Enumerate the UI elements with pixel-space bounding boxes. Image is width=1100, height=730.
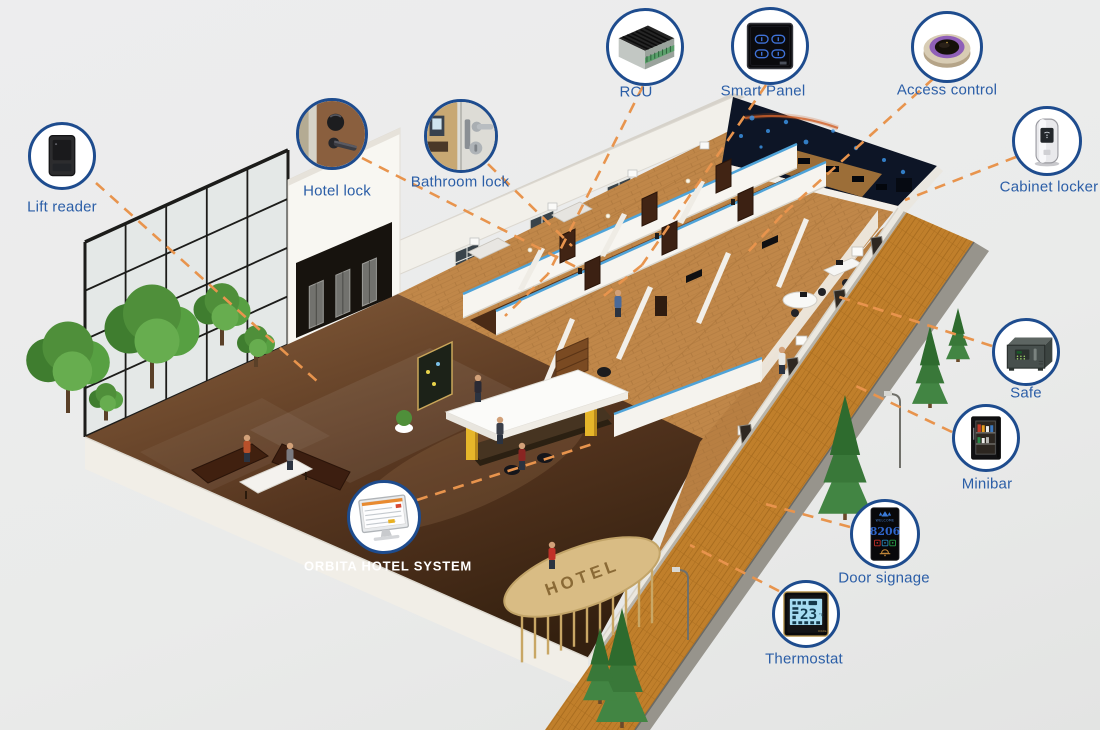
rcu-icon: [606, 8, 684, 86]
cabinet-locker-label: Cabinet locker: [1000, 179, 1099, 196]
smart-panel-icon: [731, 7, 809, 85]
thermostat-label: Thermostat: [765, 651, 843, 668]
callout-lift-reader: [28, 122, 96, 190]
door-signage-icon: WELCOME8206: [850, 499, 920, 569]
callout-bathroom-lock: [424, 99, 498, 173]
cabinet-locker-icon: [1012, 106, 1082, 176]
smart-panel-label: Smart Panel: [721, 83, 806, 100]
callout-minibar: [952, 404, 1020, 472]
access-control-icon: [911, 11, 983, 83]
access-control-label: Access control: [897, 82, 997, 99]
callout-hotel-lock: [296, 98, 368, 170]
svg-text:WELCOME: WELCOME: [876, 518, 895, 522]
callout-cabinet-locker: [1012, 106, 1082, 176]
minibar-icon: [952, 404, 1020, 472]
svg-text:°C: °C: [819, 613, 824, 619]
callout-orbita-hotel-system: [347, 480, 421, 554]
svg-text:8206: 8206: [870, 525, 901, 538]
lift-reader-label: Lift reader: [27, 199, 97, 216]
rcu-label: RCU: [619, 84, 652, 101]
svg-text:Orbita: Orbita: [818, 629, 827, 633]
safe-label: Safe: [1010, 385, 1042, 402]
callout-smart-panel: [731, 7, 809, 85]
callout-safe: [992, 318, 1060, 386]
door-signage-label: Door signage: [838, 570, 930, 587]
hotel-lock-icon: [296, 98, 368, 170]
orbita-hotel-system-icon: [347, 480, 421, 554]
svg-text:23: 23: [800, 607, 817, 623]
callout-access-control: [911, 11, 983, 83]
bathroom-lock-icon: [424, 99, 498, 173]
minibar-label: Minibar: [962, 476, 1013, 493]
bathroom-lock-label: Bathroom lock: [411, 174, 509, 191]
hotel-solution-diagram: HOTEL Lift readerHotel lockBathroom lock…: [0, 0, 1100, 730]
safe-icon: [992, 318, 1060, 386]
callout-thermostat: 23°COrbita: [772, 580, 840, 648]
isometric-hotel-illustration: HOTEL: [0, 0, 1100, 730]
lift-reader-icon: [28, 122, 96, 190]
hotel-lock-label: Hotel lock: [303, 183, 371, 200]
thermostat-icon: 23°COrbita: [772, 580, 840, 648]
orbita-hotel-system-label: ORBITA HOTEL SYSTEM: [304, 559, 472, 574]
callout-door-signage: WELCOME8206: [850, 499, 920, 569]
callout-rcu: [606, 8, 684, 86]
